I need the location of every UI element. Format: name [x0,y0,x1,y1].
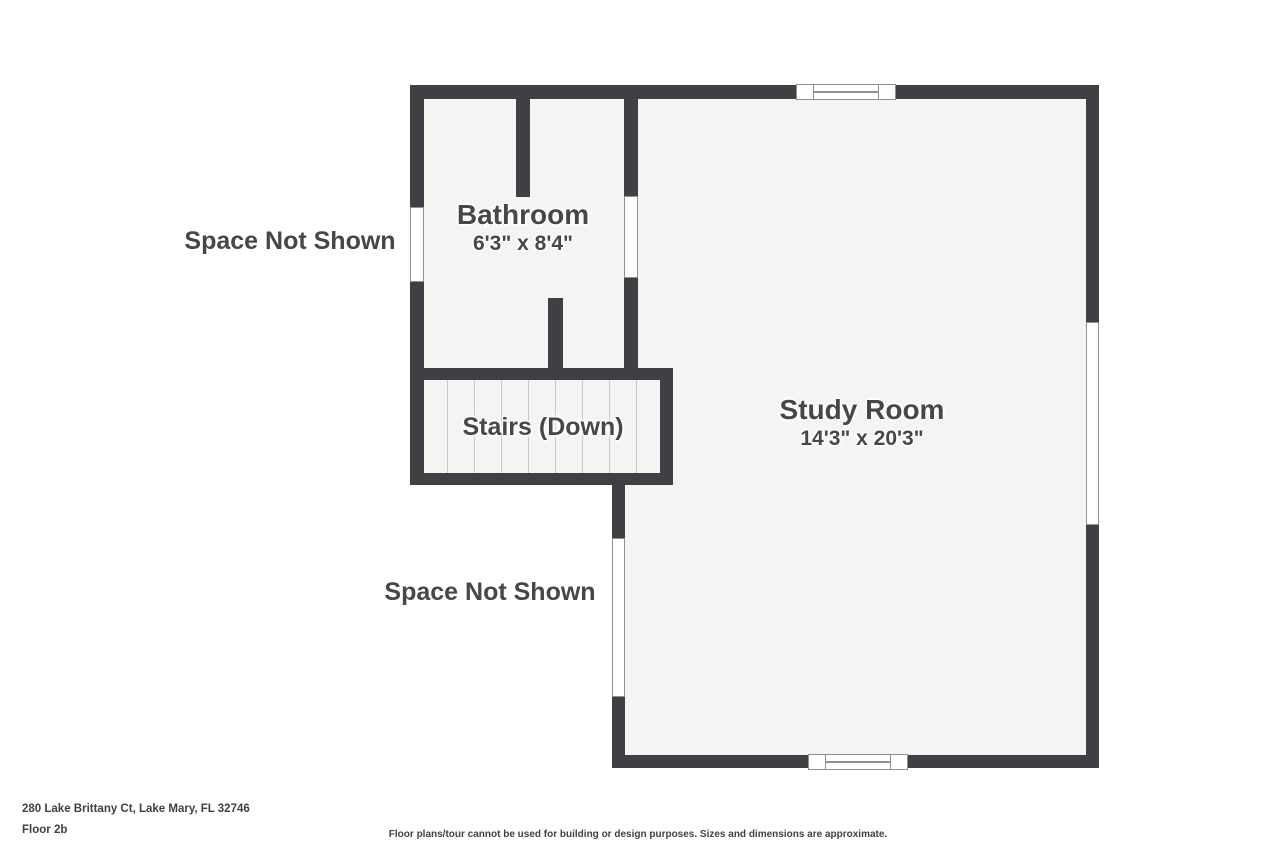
opening-bathroom-left [410,207,424,282]
window-pane [813,85,879,99]
disclaimer-text: Floor plans/tour cannot be used for buil… [389,829,887,840]
wall-stairs-bottom [410,473,673,485]
window-pane-line [814,91,878,93]
window-top [796,84,896,100]
window-bottom [808,754,908,770]
window-right [1086,322,1099,525]
opening-bathroom-study [624,196,638,278]
window-frame-cell [809,755,825,769]
opening-study-left [612,538,625,697]
window-frame-cell [891,755,907,769]
bathroom-label: Bathroom 6'3" x 8'4" [457,200,589,257]
floor-plan-canvas: Bathroom 6'3" x 8'4" Study Room 14'3" x … [0,0,1280,853]
property-address: 280 Lake Brittany Ct, Lake Mary, FL 3274… [22,803,250,815]
bathroom-dimensions: 6'3" x 8'4" [457,231,589,257]
space-not-shown-upper: Space Not Shown [184,227,395,256]
wall-bathroom-stub-top [516,99,530,197]
wall-stairs-right [660,368,673,485]
wall-stairs-top [410,368,673,380]
floor-label: Floor 2b [22,824,67,836]
window-pane-line [826,761,890,763]
study-room-dimensions: 14'3" x 20'3" [780,426,945,452]
window-frame-cell [879,85,895,99]
study-room-label: Study Room 14'3" x 20'3" [780,395,945,452]
wall-top [410,85,1099,99]
space-not-shown-lower: Space Not Shown [384,578,595,607]
bathroom-name: Bathroom [457,200,589,231]
wall-left [410,85,424,485]
window-frame-cell [797,85,813,99]
window-pane [825,755,891,769]
study-room-name: Study Room [780,395,945,426]
stairs-label: Stairs (Down) [462,413,623,442]
